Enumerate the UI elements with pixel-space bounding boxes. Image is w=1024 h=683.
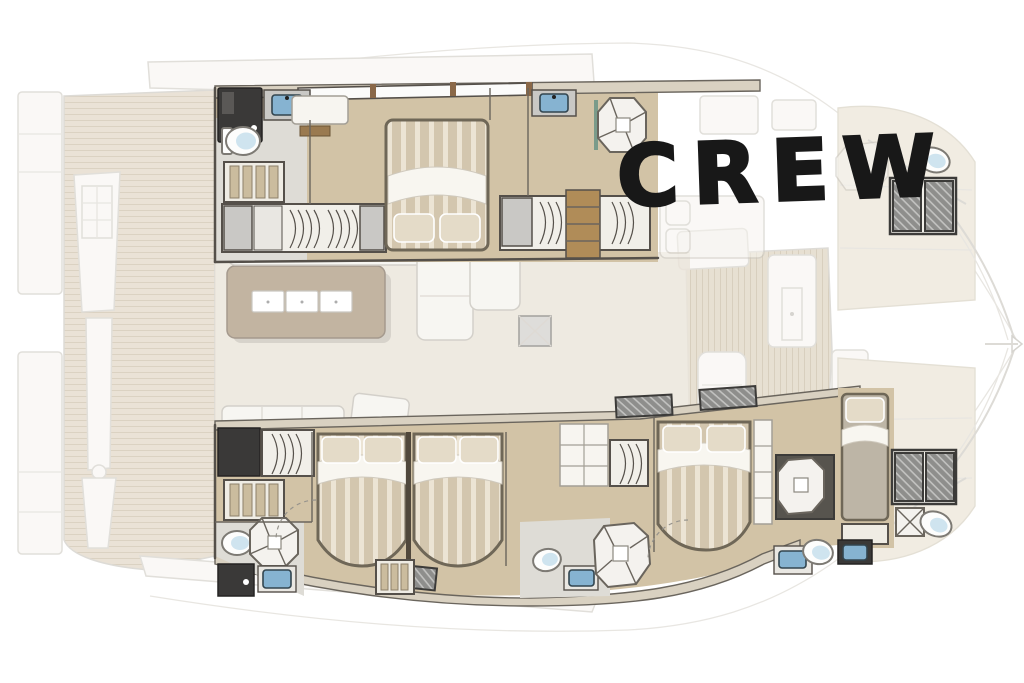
pillow — [418, 437, 456, 463]
bottom-hull-interior — [215, 386, 860, 606]
shower-cubicle — [218, 564, 254, 596]
window-post — [526, 82, 532, 96]
crew-berth — [842, 394, 888, 520]
double-bed — [318, 434, 406, 566]
shower-icon — [250, 518, 298, 566]
toilet-icon — [222, 531, 252, 555]
crew-label: CREW — [615, 116, 951, 226]
pillow — [460, 437, 498, 463]
pillow — [846, 398, 884, 422]
hanging-locker — [262, 430, 314, 476]
pillow — [394, 214, 434, 242]
berth-cushion — [926, 453, 954, 501]
stern-platform-top — [18, 92, 62, 294]
hull-window — [616, 395, 673, 418]
sink-icon — [779, 551, 806, 568]
double-bed — [658, 422, 750, 550]
stern-platform-bottom — [18, 352, 62, 554]
vanity-desk — [292, 96, 348, 124]
double-bed — [386, 120, 488, 250]
sink-icon — [263, 570, 291, 588]
berth-cushion — [895, 453, 923, 501]
stool — [300, 126, 330, 136]
crew-berth-storage — [892, 450, 956, 504]
companionway-steps — [224, 480, 284, 520]
bed-divider — [406, 432, 411, 564]
wardrobe-row — [222, 204, 386, 252]
shower-icon — [778, 458, 824, 514]
pillow — [707, 426, 745, 452]
pillow — [663, 426, 701, 452]
toilet-icon — [222, 127, 260, 155]
pillow — [440, 214, 480, 242]
window-post — [450, 82, 456, 96]
catamaran-floor-plan: CREW — [0, 0, 1024, 683]
hanging-locker — [610, 440, 648, 486]
sink-icon — [569, 570, 594, 586]
pillow — [364, 437, 402, 463]
companionway-steps — [376, 560, 414, 594]
pillow — [322, 437, 360, 463]
sink-icon — [843, 545, 867, 560]
hull-window — [699, 386, 756, 410]
wardrobe-dark — [218, 428, 260, 476]
companionway-steps — [224, 162, 284, 202]
window-post — [370, 84, 376, 98]
floor-plan-canvas: CREW — [0, 0, 1024, 683]
shower-icon — [594, 523, 650, 587]
double-bed — [414, 434, 502, 566]
